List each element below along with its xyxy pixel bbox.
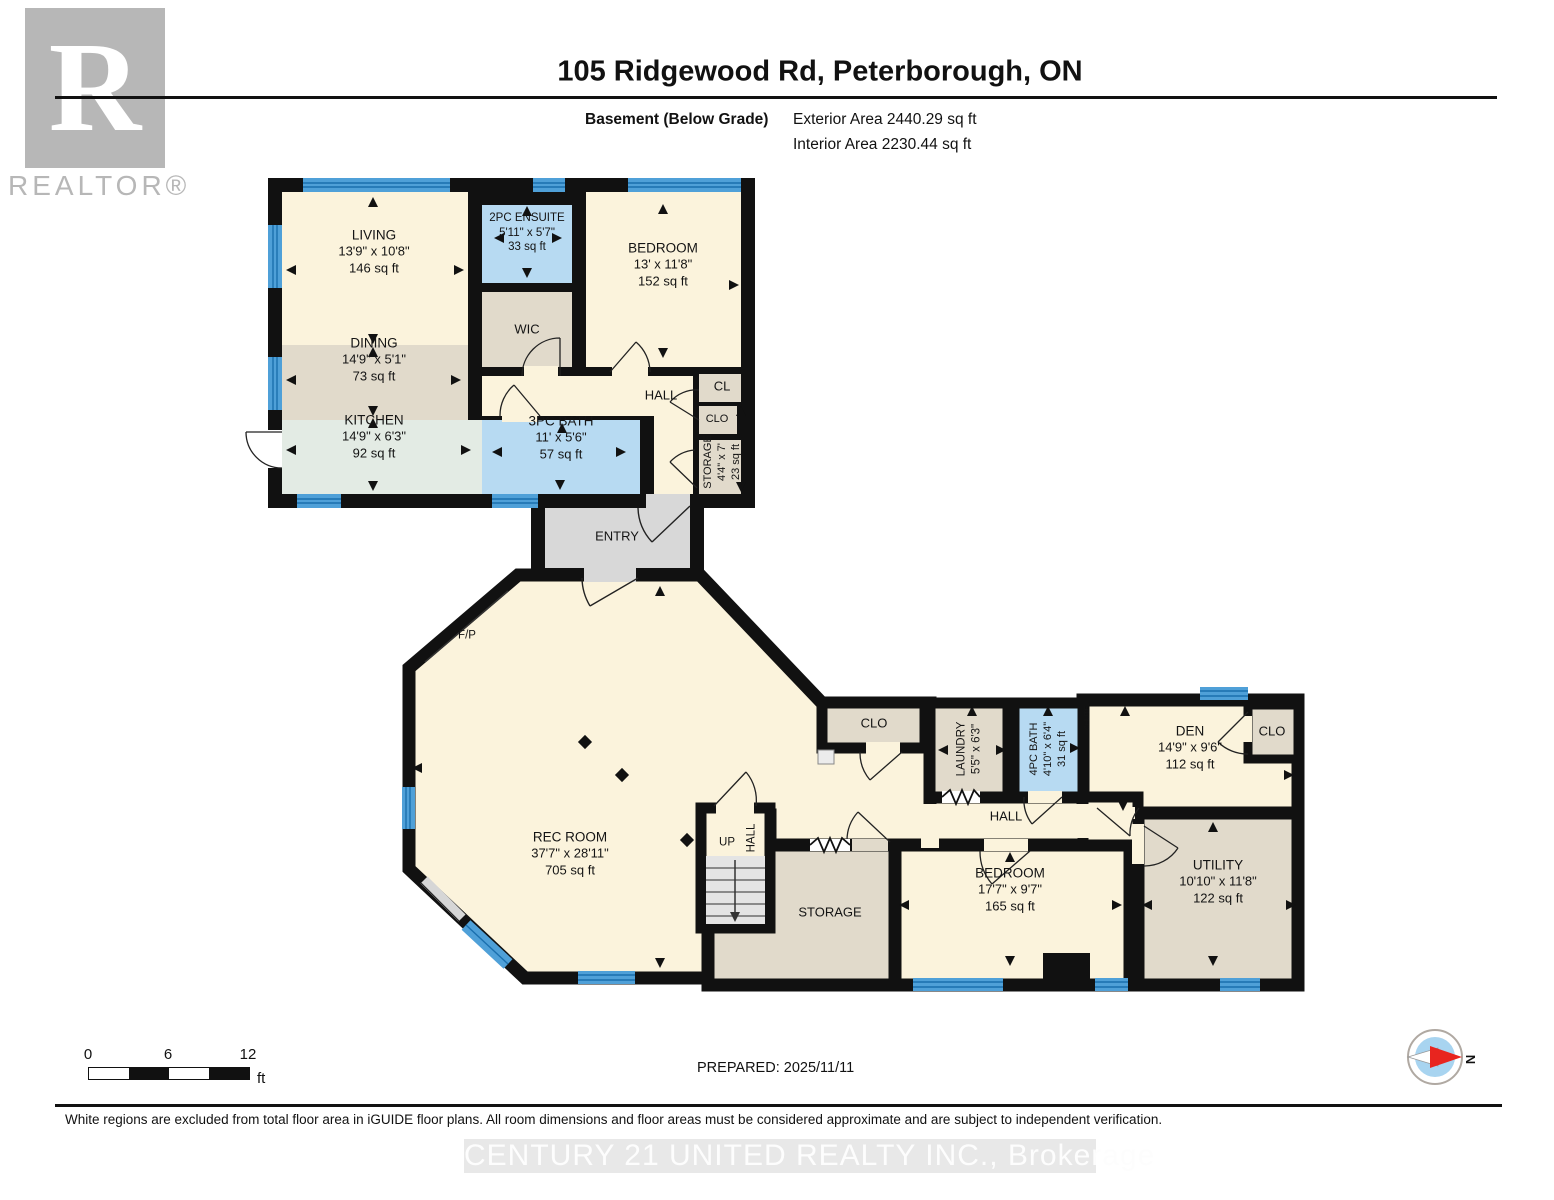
room-label-clo-upper: CLO bbox=[706, 412, 729, 426]
brokerage-watermark: CENTURY 21 UNITED REALTY INC., Brokerage bbox=[464, 1139, 1096, 1173]
room-label-hall-lower: HALL bbox=[990, 809, 1023, 826]
room-label-3pc-bath: 3PC BATH 11' x 5'6" 57 sq ft bbox=[528, 413, 593, 464]
scale-bar-segment bbox=[129, 1068, 169, 1079]
room-label-entry: ENTRY bbox=[595, 529, 639, 546]
room-label-2pc-ensuite: 2PC ENSUITE 5'11" x 5'7" 33 sq ft bbox=[489, 211, 564, 255]
compass-north-label: N bbox=[1463, 1055, 1478, 1064]
fireplace-label: F/P bbox=[458, 629, 476, 644]
compass-icon bbox=[1408, 1030, 1462, 1084]
scale-bar bbox=[88, 1067, 250, 1080]
prepared-date: PREPARED: 2025/11/11 bbox=[697, 1060, 854, 1076]
room-label-living: LIVING 13'9" x 10'8" 146 sq ft bbox=[338, 227, 409, 278]
staircase bbox=[701, 802, 770, 928]
room-label-storage-upper: STORAGE 4'4" x 7' 23 sq ft bbox=[701, 435, 743, 489]
room-label-clo-mid: CLO bbox=[861, 716, 888, 733]
room-label-hall-upper: HALL bbox=[645, 388, 678, 405]
room-label-utility: UTILITY 10'10" x 11'8" 122 sq ft bbox=[1179, 857, 1257, 908]
room-label-laundry: LAUNDRY 5'5" x 6'3" bbox=[954, 722, 983, 777]
floorplan-page: R REALTOR® 105 Ridgewood Rd, Peterboroug… bbox=[0, 0, 1554, 1200]
scale-bar-segment bbox=[209, 1068, 249, 1079]
chute-label: CHUTE bbox=[1085, 706, 1094, 730]
stairs-hall-label: HALL bbox=[745, 824, 760, 853]
room-label-wic: WIC bbox=[514, 322, 539, 339]
scale-unit: ft bbox=[257, 1070, 265, 1087]
room-label-rec-room: REC ROOM 37'7" x 28'11" 705 sq ft bbox=[531, 829, 609, 880]
floorplan-drawing bbox=[0, 0, 1554, 1200]
footer-divider bbox=[55, 1104, 1502, 1107]
room-label-kitchen: KITCHEN 14'9" x 6'3" 92 sq ft bbox=[342, 412, 406, 463]
room-label-storage-lower: STORAGE bbox=[798, 905, 861, 922]
room-label-bedroom: BEDROOM 13' x 11'8" 152 sq ft bbox=[628, 240, 698, 291]
room-label-4pc-bath: 4PC BATH 4'10" x 6'4" 31 sq ft bbox=[1027, 722, 1069, 776]
room-label-den: DEN 14'9" x 9'6" 112 sq ft bbox=[1158, 723, 1222, 774]
scale-label-12: 12 bbox=[240, 1046, 257, 1063]
disclaimer-text: White regions are excluded from total fl… bbox=[65, 1112, 1162, 1127]
room-label-dining: DINING 14'9" x 5'1" 73 sq ft bbox=[342, 335, 406, 386]
scale-label-6: 6 bbox=[164, 1046, 172, 1063]
room-label-bedroom-lower: BEDROOM 17'7" x 9'7" 165 sq ft bbox=[975, 865, 1045, 916]
room-label-clo-right: CLO bbox=[1259, 724, 1286, 741]
stairs-up-label: UP bbox=[719, 836, 735, 851]
room-label-cl: CL bbox=[714, 379, 731, 396]
scale-label-0: 0 bbox=[84, 1046, 92, 1063]
